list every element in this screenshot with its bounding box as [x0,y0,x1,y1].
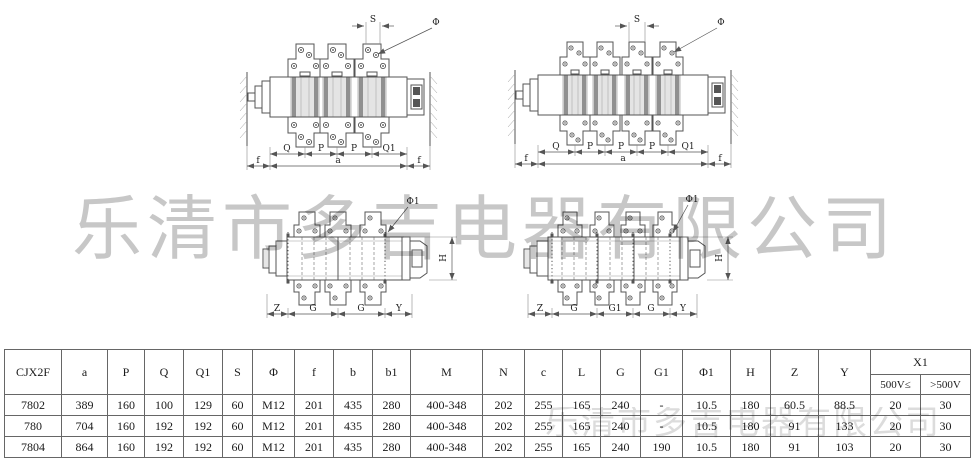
dim-label-s: S [634,15,640,25]
dim-label-q: Q [552,142,559,152]
table-cell: 103 [819,437,871,458]
table-cell: 255 [525,395,563,416]
contactor-body [516,42,725,145]
mounting-wall-hatch-left [508,70,515,144]
table-cell: 160 [108,395,145,416]
col-header-x1-le500v: 500V≤ [871,375,921,395]
mounting-wall-hatch-right [731,70,738,144]
contactor-body [248,44,424,147]
table-cell: 60.5 [771,395,819,416]
table-cell: 280 [373,416,411,437]
dim-label-h: H [715,254,725,262]
dim-label-p: P [649,142,655,152]
col-header-n: N [483,350,525,395]
table-cell: 20 [871,416,921,437]
table-cell: 180 [731,395,771,416]
table-cell: 240 [601,437,641,458]
table-cell: 190 [641,437,683,458]
table-cell: 400-348 [411,395,483,416]
table-cell: 91 [771,416,819,437]
table-cell: 435 [334,437,373,458]
table-cell: 10.5 [683,437,731,458]
table-cell: 100 [145,395,184,416]
front-view-3pole: S Φ Q P P Q1 f a f [228,14,473,174]
table-cell: 192 [184,437,223,458]
dim-label-g: G [309,304,316,314]
table-row: 780486416019219260M12201435280400-348202… [5,437,971,458]
col-header-b: b [334,350,373,395]
table-cell: M12 [253,437,295,458]
dimension-table-body: 780238916010012960M12201435280400-348202… [5,395,971,458]
watermark-text: 乐清市多吉电器有限公司 [72,196,897,266]
table-cell: 20 [871,395,921,416]
table-cell: 30 [921,395,971,416]
table-cell: 180 [731,437,771,458]
dim-label-q: Q [283,144,290,154]
table-cell: 133 [819,416,871,437]
dim-label-f: f [524,154,528,164]
bottom-view-3pole: Φ1 H Z G G Y [252,188,477,333]
table-cell: 7804 [5,437,62,458]
mounting-wall-hatch-left [240,72,247,146]
table-cell: 201 [295,437,334,458]
table-cell: 160 [108,416,145,437]
dim-label-s: S [370,15,376,25]
table-cell: 201 [295,395,334,416]
col-header-x1: X1 [871,350,971,375]
dim-label-p: P [587,142,593,152]
table-cell: 91 [771,437,819,458]
table-cell: 704 [62,416,108,437]
table-cell: 400-348 [411,416,483,437]
col-header-l: L [563,350,601,395]
table-cell: 30 [921,437,971,458]
table-cell: 202 [483,416,525,437]
col-header-c: c [525,350,563,395]
col-header-b1: b1 [373,350,411,395]
dimension-table: CJX2F a P Q Q1 S Φ f b b1 M N c L G G1 Φ… [4,349,971,458]
table-cell: 60 [223,437,253,458]
table-cell: 240 [601,416,641,437]
dim-label-h: H [439,254,449,262]
table-cell: 7802 [5,395,62,416]
table-cell: 165 [563,395,601,416]
table-cell: 280 [373,437,411,458]
table-cell: 201 [295,416,334,437]
dim-label-p: P [318,144,324,154]
table-cell: 400-348 [411,437,483,458]
dim-label-phi1: Φ1 [406,197,419,207]
col-header-h: H [731,350,771,395]
dim-label-g: G [570,304,577,314]
table-cell: 165 [563,416,601,437]
table-cell: 60 [223,416,253,437]
col-header-g: G [601,350,641,395]
dim-label-phi: Φ [432,18,439,28]
table-cell: 10.5 [683,416,731,437]
col-header-phi1: Φ1 [683,350,731,395]
table-cell: - [641,416,683,437]
col-header-f: f [295,350,334,395]
bottom-view-4pole: Φ1 H Z G G1 G Y [518,188,758,333]
table-cell: 129 [184,395,223,416]
dim-label-z: Z [274,304,280,314]
table-cell: 435 [334,416,373,437]
col-header-p: P [108,350,145,395]
table-cell: M12 [253,395,295,416]
table-cell: 202 [483,395,525,416]
table-cell: - [641,395,683,416]
col-header-z: Z [771,350,819,395]
col-header-model: CJX2F [5,350,62,395]
col-header-q: Q [145,350,184,395]
catalog-page: S Φ Q P P Q1 f a f [0,0,974,462]
col-header-x1-gt500v: >500V [921,375,971,395]
table-cell: 180 [731,416,771,437]
dim-label-phi1: Φ1 [685,195,698,205]
col-header-a: a [62,350,108,395]
table-cell: M12 [253,416,295,437]
dim-label-g1: G1 [609,304,622,314]
dim-label-g: G [357,304,364,314]
col-header-y: Y [819,350,871,395]
table-cell: 20 [871,437,921,458]
dim-label-p: P [351,144,357,154]
contactor-body [524,212,705,305]
table-cell: 88.5 [819,395,871,416]
table-cell: 160 [108,437,145,458]
dim-label-q1: Q1 [681,142,694,152]
table-cell: 435 [334,395,373,416]
table-cell: 240 [601,395,641,416]
dim-label-f: f [718,154,722,164]
table-cell: 255 [525,437,563,458]
mounting-wall-hatch-right [430,72,437,146]
table-cell: 192 [145,416,184,437]
col-header-m: M [411,350,483,395]
dim-label-a: a [620,154,626,164]
front-view-4pole: S Φ Q P P P Q1 f a f [492,14,742,174]
dimensions: S Φ Q P P P Q1 f a f [515,15,731,168]
dim-label-y: Y [679,304,687,314]
table-cell: 165 [563,437,601,458]
dim-label-z: Z [537,304,543,314]
col-header-phi: Φ [253,350,295,395]
table-row: 780238916010012960M12201435280400-348202… [5,395,971,416]
dim-label-f: f [256,156,260,166]
dim-label-phi: Φ [717,18,724,28]
dim-label-g: G [647,304,654,314]
dim-label-y: Y [395,304,403,314]
dim-label-p: P [618,142,624,152]
dim-label-a: a [335,156,341,166]
dim-label-f: f [417,156,421,166]
contactor-body [263,212,427,305]
table-cell: 202 [483,437,525,458]
table-cell: 280 [373,395,411,416]
table-cell: 10.5 [683,395,731,416]
table-cell: 60 [223,395,253,416]
table-row: 78070416019219260M12201435280400-3482022… [5,416,971,437]
col-header-g1: G1 [641,350,683,395]
col-header-q1: Q1 [184,350,223,395]
col-header-s: S [223,350,253,395]
table-cell: 864 [62,437,108,458]
table-cell: 30 [921,416,971,437]
table-cell: 192 [184,416,223,437]
table-cell: 780 [5,416,62,437]
table-cell: 255 [525,416,563,437]
table-cell: 389 [62,395,108,416]
dim-label-q1: Q1 [382,144,395,154]
table-cell: 192 [145,437,184,458]
